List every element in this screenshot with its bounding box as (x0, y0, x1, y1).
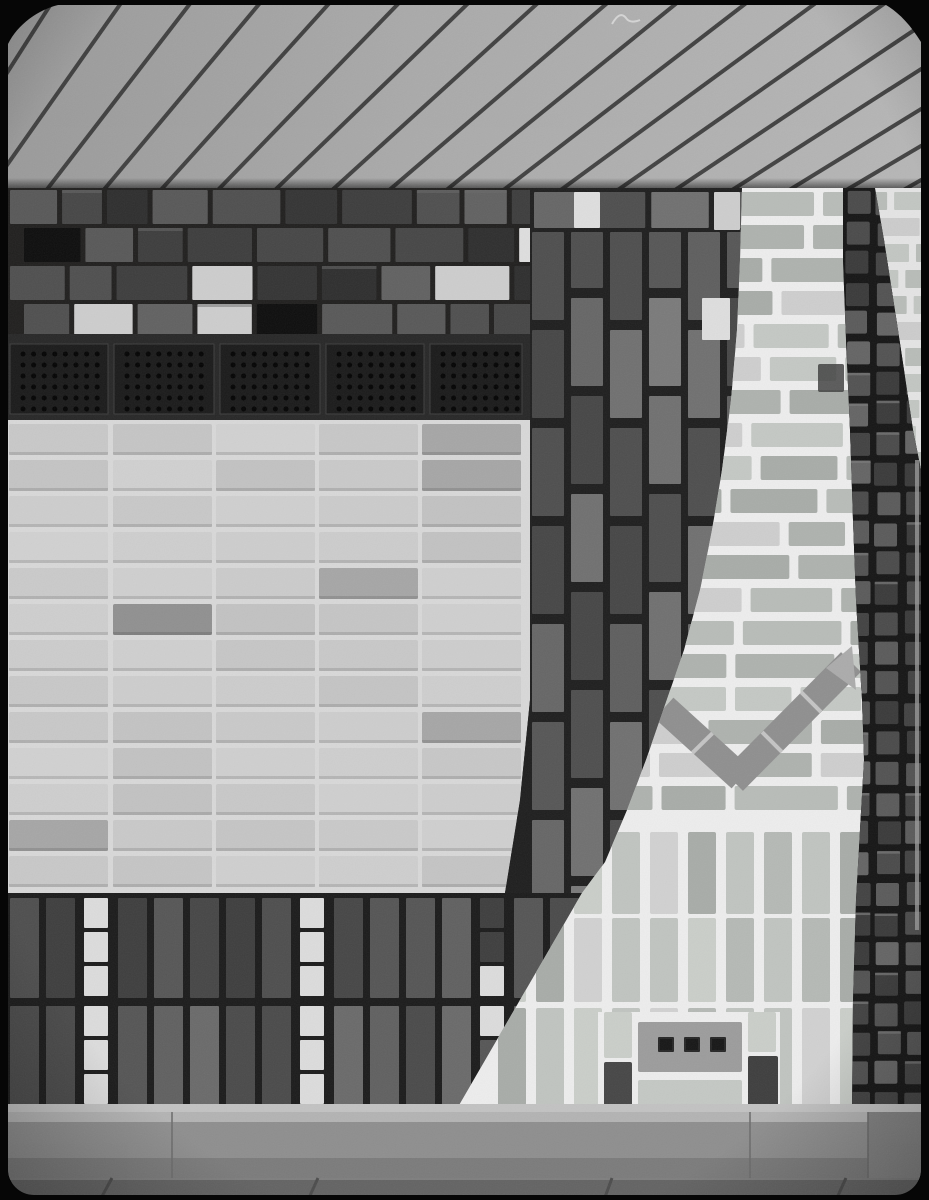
film-grain-overlay (8, 5, 921, 1195)
photograph (0, 0, 929, 1200)
brick-wall-photo (0, 0, 929, 1200)
